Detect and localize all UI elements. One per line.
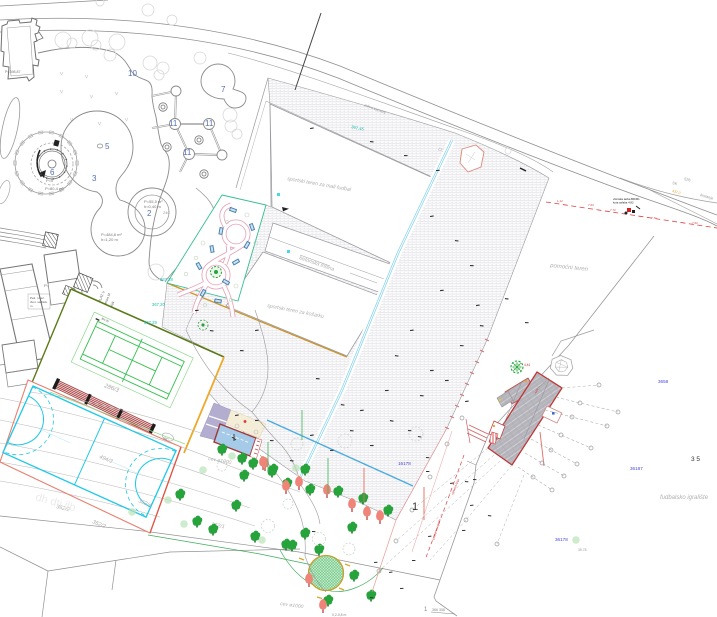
svg-text:366 356: 366 356: [432, 608, 445, 612]
svg-text:7,63: 7,63: [588, 203, 594, 207]
svg-text:7: 7: [221, 85, 226, 94]
svg-text:kota asfalta 4.82: kota asfalta 4.82: [613, 200, 634, 204]
svg-text:10: 10: [128, 69, 137, 78]
svg-text:P=80,4 m²: P=80,4 m²: [45, 186, 64, 191]
svg-text:35.78: 35.78: [578, 548, 587, 552]
svg-text:0,2-0,8 m: 0,2-0,8 m: [332, 613, 346, 617]
svg-text:3658: 3658: [658, 379, 669, 384]
svg-text:36187: 36187: [630, 466, 643, 471]
svg-text:367,28: 367,28: [160, 277, 173, 282]
svg-text:7,62: 7,62: [692, 221, 698, 225]
svg-text:367,20: 367,20: [152, 302, 165, 307]
svg-text:P=398,87: P=398,87: [5, 70, 21, 74]
svg-text:7,72: 7,72: [610, 208, 616, 212]
svg-text:P=0: P=0: [46, 178, 54, 183]
svg-text:11: 11: [169, 119, 178, 128]
svg-text:7,71: 7,71: [651, 216, 657, 220]
svg-text:dvor. sa blok.: dvor. sa blok.: [30, 300, 48, 304]
svg-text:h=0,40 m: h=0,40 m: [144, 204, 161, 209]
svg-text:36178: 36178: [555, 537, 568, 542]
svg-text:4,44: 4,44: [524, 363, 530, 367]
svg-text:6: 6: [50, 168, 55, 177]
svg-text:1: 1: [412, 501, 418, 513]
svg-text:2: 2: [147, 209, 152, 218]
svg-text:240: 240: [163, 210, 170, 215]
svg-text:16178: 16178: [398, 461, 411, 466]
svg-text:11: 11: [205, 119, 214, 128]
svg-text:5: 5: [105, 142, 110, 151]
svg-text:3: 3: [92, 174, 97, 183]
svg-text:fudbalsko igralište: fudbalsko igralište: [660, 495, 709, 501]
svg-text:367,29: 367,29: [144, 320, 157, 325]
svg-text:h=1,20 m: h=1,20 m: [101, 237, 118, 242]
svg-text:11: 11: [183, 148, 192, 157]
svg-text:3 5: 3 5: [691, 456, 700, 463]
svg-text:1,12: 1,12: [557, 199, 563, 203]
